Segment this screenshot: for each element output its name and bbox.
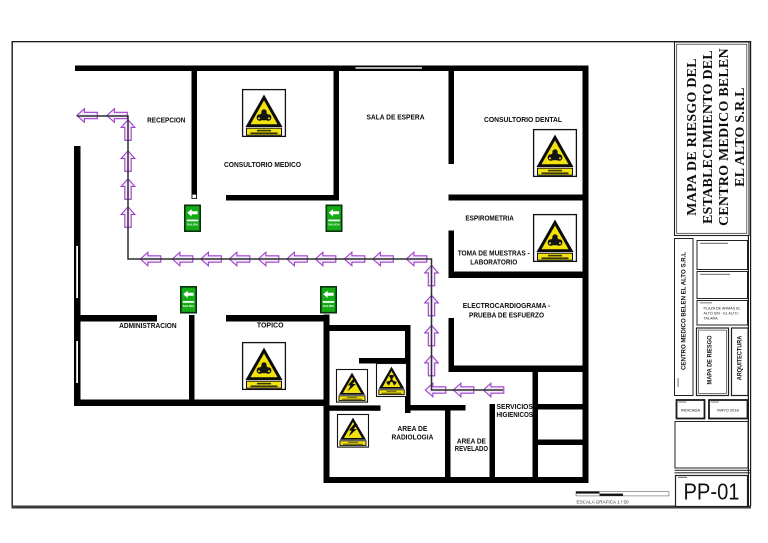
svg-text:ESCALA GRAFICA 1 / 50: ESCALA GRAFICA 1 / 50 [577,500,630,505]
svg-text:ALTO S/N - EL ALTO -: ALTO S/N - EL ALTO - [704,312,741,316]
svg-text:RADIOLOGIA: RADIOLOGIA [392,433,434,442]
svg-text:LABORATORIO: LABORATORIO [470,258,517,267]
svg-text:PRUEBA DE ESFUERZO: PRUEBA DE ESFUERZO [469,311,544,320]
svg-text:MAPA DE RIESGO DEL: MAPA DE RIESGO DEL [685,58,700,216]
svg-text:REVELADO: REVELADO [455,444,488,453]
svg-text:ARQUITECTURA: ARQUITECTURA [737,335,744,380]
svg-text:SALA DE ESPERA: SALA DE ESPERA [367,113,426,122]
svg-text:MAYO 2018: MAYO 2018 [717,408,739,413]
svg-text:TOMA DE MUESTRAS -: TOMA DE MUESTRAS - [458,249,530,258]
svg-text:CENTRO MEDICO BELEN EL ALTO S.: CENTRO MEDICO BELEN EL ALTO S.R.L [682,252,688,370]
svg-text:PLAZA DE ARMAS EL: PLAZA DE ARMAS EL [704,307,741,311]
svg-text:ELECTROCARDIOGRAMA -: ELECTROCARDIOGRAMA - [463,301,551,310]
svg-text:HIGIENICOS: HIGIENICOS [496,410,533,419]
svg-text:CONSULTORIO DENTAL: CONSULTORIO DENTAL [484,115,562,124]
svg-text:ESPIROMETRIA: ESPIROMETRIA [465,214,514,223]
svg-text:EL ALTO S.R.L: EL ALTO S.R.L [733,87,748,187]
svg-text:MAPA DE RIESGO: MAPA DE RIESGO [707,336,714,385]
svg-text:INDICADA: INDICADA [681,408,700,413]
svg-text:PP-01: PP-01 [684,479,740,505]
svg-text:RECEPCION: RECEPCION [147,116,185,125]
svg-text:ADMINISTRACION: ADMINISTRACION [119,321,177,330]
svg-text:ESTABLECIMIENTO DEL: ESTABLECIMIENTO DEL [701,50,716,224]
svg-text:TOPICO: TOPICO [257,321,284,330]
svg-text:CENTRO MEDICO BELEN: CENTRO MEDICO BELEN [717,48,732,226]
svg-text:CONSULTORIO MEDICO: CONSULTORIO MEDICO [224,160,301,169]
svg-text:TALARA.: TALARA. [704,317,719,321]
